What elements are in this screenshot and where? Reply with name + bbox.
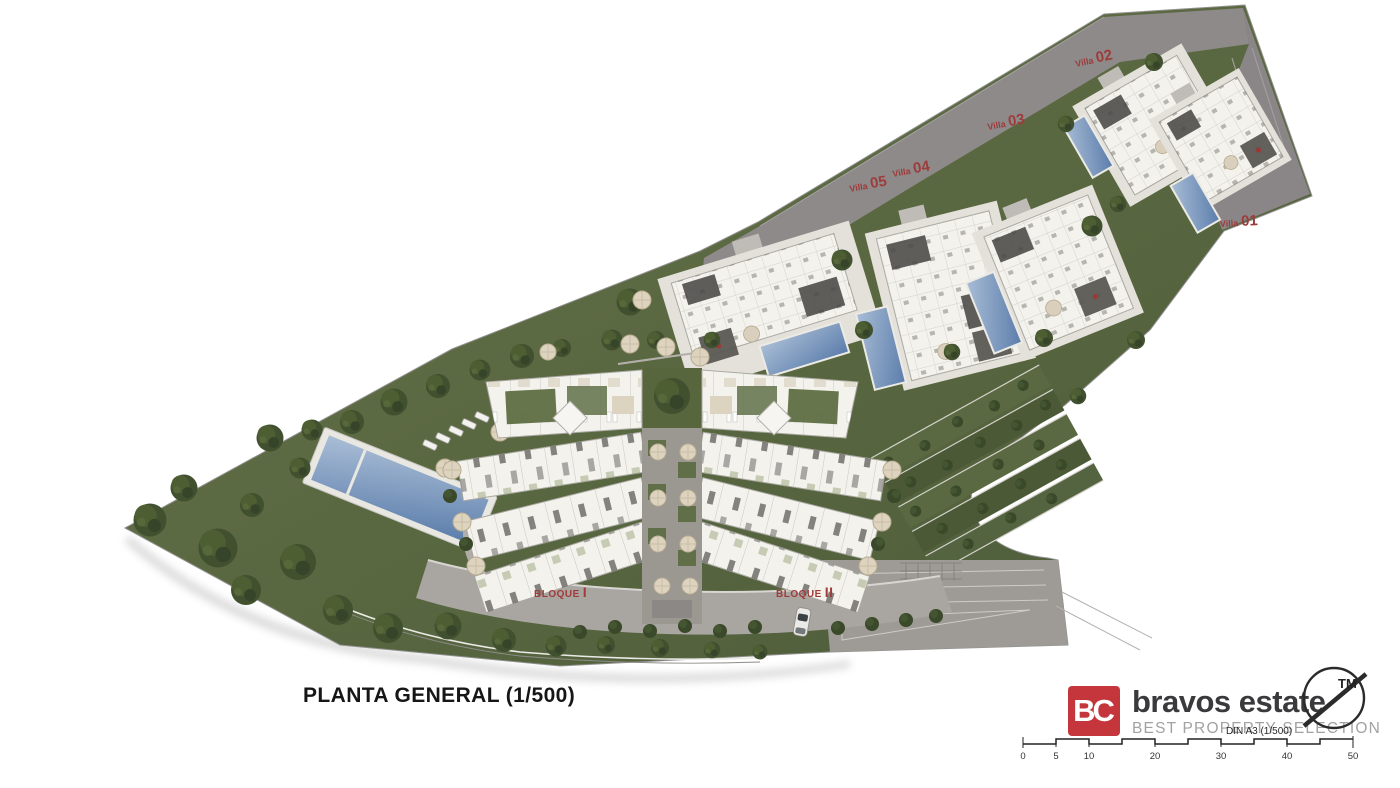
svg-text:TM: TM <box>1338 676 1357 691</box>
svg-text:5: 5 <box>1053 751 1058 762</box>
site-plan-sheet: Villa05 Villa04 Villa03 Villa02 Villa01 … <box>0 0 1400 788</box>
svg-text:40: 40 <box>1282 751 1293 762</box>
scale-bar: 0 5 10 20 30 40 50 <box>1008 732 1368 766</box>
central-spine <box>642 428 702 624</box>
villa-plots <box>653 33 1299 400</box>
svg-text:10: 10 <box>1084 751 1095 762</box>
svg-text:50: 50 <box>1348 751 1359 762</box>
svg-text:0: 0 <box>1020 751 1025 762</box>
site-plan-drawing: Villa05 Villa04 Villa03 Villa02 Villa01 … <box>0 0 1400 788</box>
svg-text:30: 30 <box>1216 751 1227 762</box>
trademark-icon: TM <box>1296 660 1376 738</box>
brand-mark: BC <box>1068 686 1120 736</box>
svg-text:20: 20 <box>1150 751 1161 762</box>
plan-title: PLANTA GENERAL (1/500) <box>303 684 575 708</box>
